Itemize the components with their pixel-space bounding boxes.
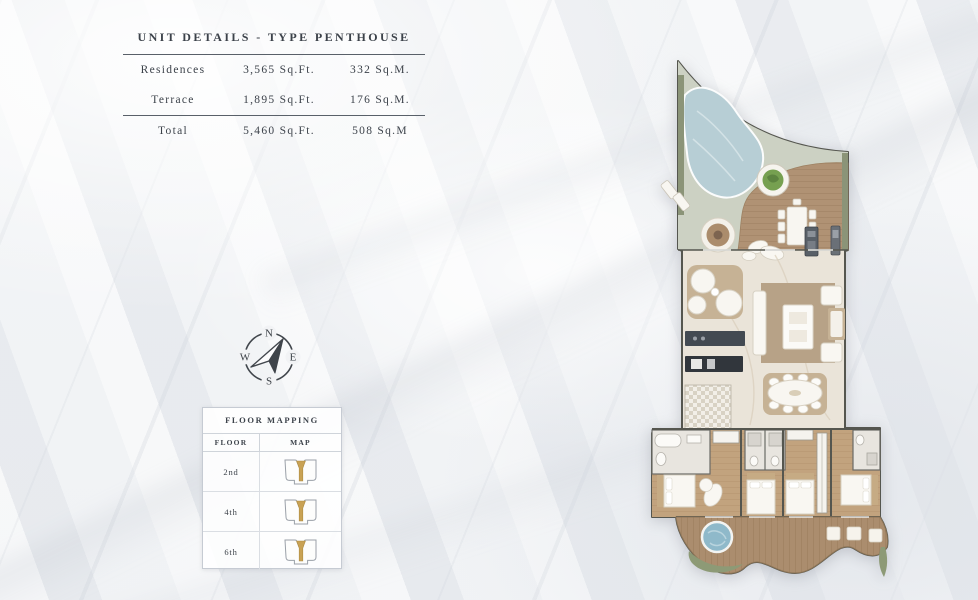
row-sqft: 1,895 Sq.Ft. — [223, 94, 335, 106]
penthouse-floor-plan — [645, 55, 925, 595]
floor-mapping-row: 6th — [203, 532, 341, 571]
building-map-icon — [282, 497, 320, 527]
row-sqm: 508 Sq.M — [335, 125, 425, 137]
compass-east: E — [290, 352, 297, 364]
greenery-right — [879, 547, 887, 577]
floor-mapping-row: 2nd — [203, 452, 341, 492]
deck-cushions — [827, 527, 882, 542]
floor-plan-drawing — [645, 55, 925, 595]
row-sqft: 5,460 Sq.Ft. — [223, 125, 335, 137]
brochure-page: UNIT DETAILS - TYPE PENTHOUSE Residences… — [0, 0, 978, 600]
row-label: Residences — [123, 64, 223, 76]
planter-tree — [757, 164, 789, 196]
row-sqm: 176 Sq.M. — [335, 94, 425, 106]
floor-mapping-columns: FLOOR MAP — [203, 434, 341, 452]
floor-label: 2nd — [203, 452, 260, 491]
floor-mapping-row: 4th — [203, 492, 341, 532]
unit-details-table: UNIT DETAILS - TYPE PENTHOUSE Residences… — [123, 30, 425, 146]
floor-mapping-table: FLOOR MAPPING FLOOR MAP 2nd 4th — [202, 407, 342, 569]
jacuzzi — [702, 522, 732, 552]
map-cell — [260, 452, 341, 491]
col-map: MAP — [260, 434, 341, 451]
table-row: Terrace 1,895 Sq.Ft. 176 Sq.M. — [123, 85, 425, 115]
row-sqm: 332 Sq.M. — [335, 64, 425, 76]
living-room — [753, 283, 845, 363]
floor-label: 4th — [203, 492, 260, 531]
row-label: Terrace — [123, 94, 223, 106]
map-cell — [260, 492, 341, 531]
floor-mapping-title: FLOOR MAPPING — [203, 408, 341, 434]
compass-rose: N E S W — [228, 314, 310, 398]
map-cell — [260, 532, 341, 571]
row-label: Total — [123, 125, 223, 137]
fire-pit — [701, 218, 735, 252]
compass-west: W — [240, 352, 251, 364]
floor-label: 6th — [203, 532, 260, 571]
compass-north: N — [265, 328, 273, 340]
compass-icon: N E S W — [228, 314, 310, 398]
table-row: Residences 3,565 Sq.Ft. 332 Sq.M. — [123, 55, 425, 85]
building-map-icon — [282, 457, 320, 487]
hedge-right — [842, 153, 848, 250]
compass-south: S — [266, 376, 272, 388]
building-map-icon — [282, 537, 320, 567]
col-floor: FLOOR — [203, 434, 260, 451]
row-sqft: 3,565 Sq.Ft. — [223, 64, 335, 76]
unit-details-title: UNIT DETAILS - TYPE PENTHOUSE — [123, 30, 425, 54]
table-row: Total 5,460 Sq.Ft. 508 Sq.M — [123, 116, 425, 146]
dining-area — [763, 373, 827, 415]
lounge-nook — [687, 265, 743, 319]
